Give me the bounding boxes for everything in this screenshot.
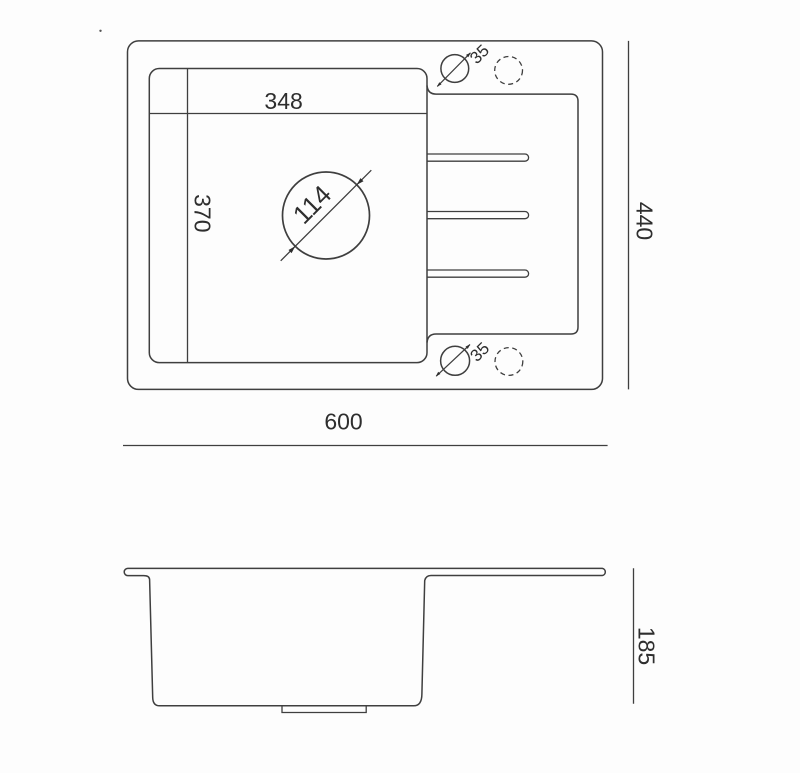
svg-text:600: 600 — [324, 409, 362, 435]
svg-text:348: 348 — [264, 88, 302, 114]
svg-text:370: 370 — [189, 194, 215, 232]
svg-text:185: 185 — [634, 627, 660, 665]
svg-text:440: 440 — [631, 202, 657, 240]
